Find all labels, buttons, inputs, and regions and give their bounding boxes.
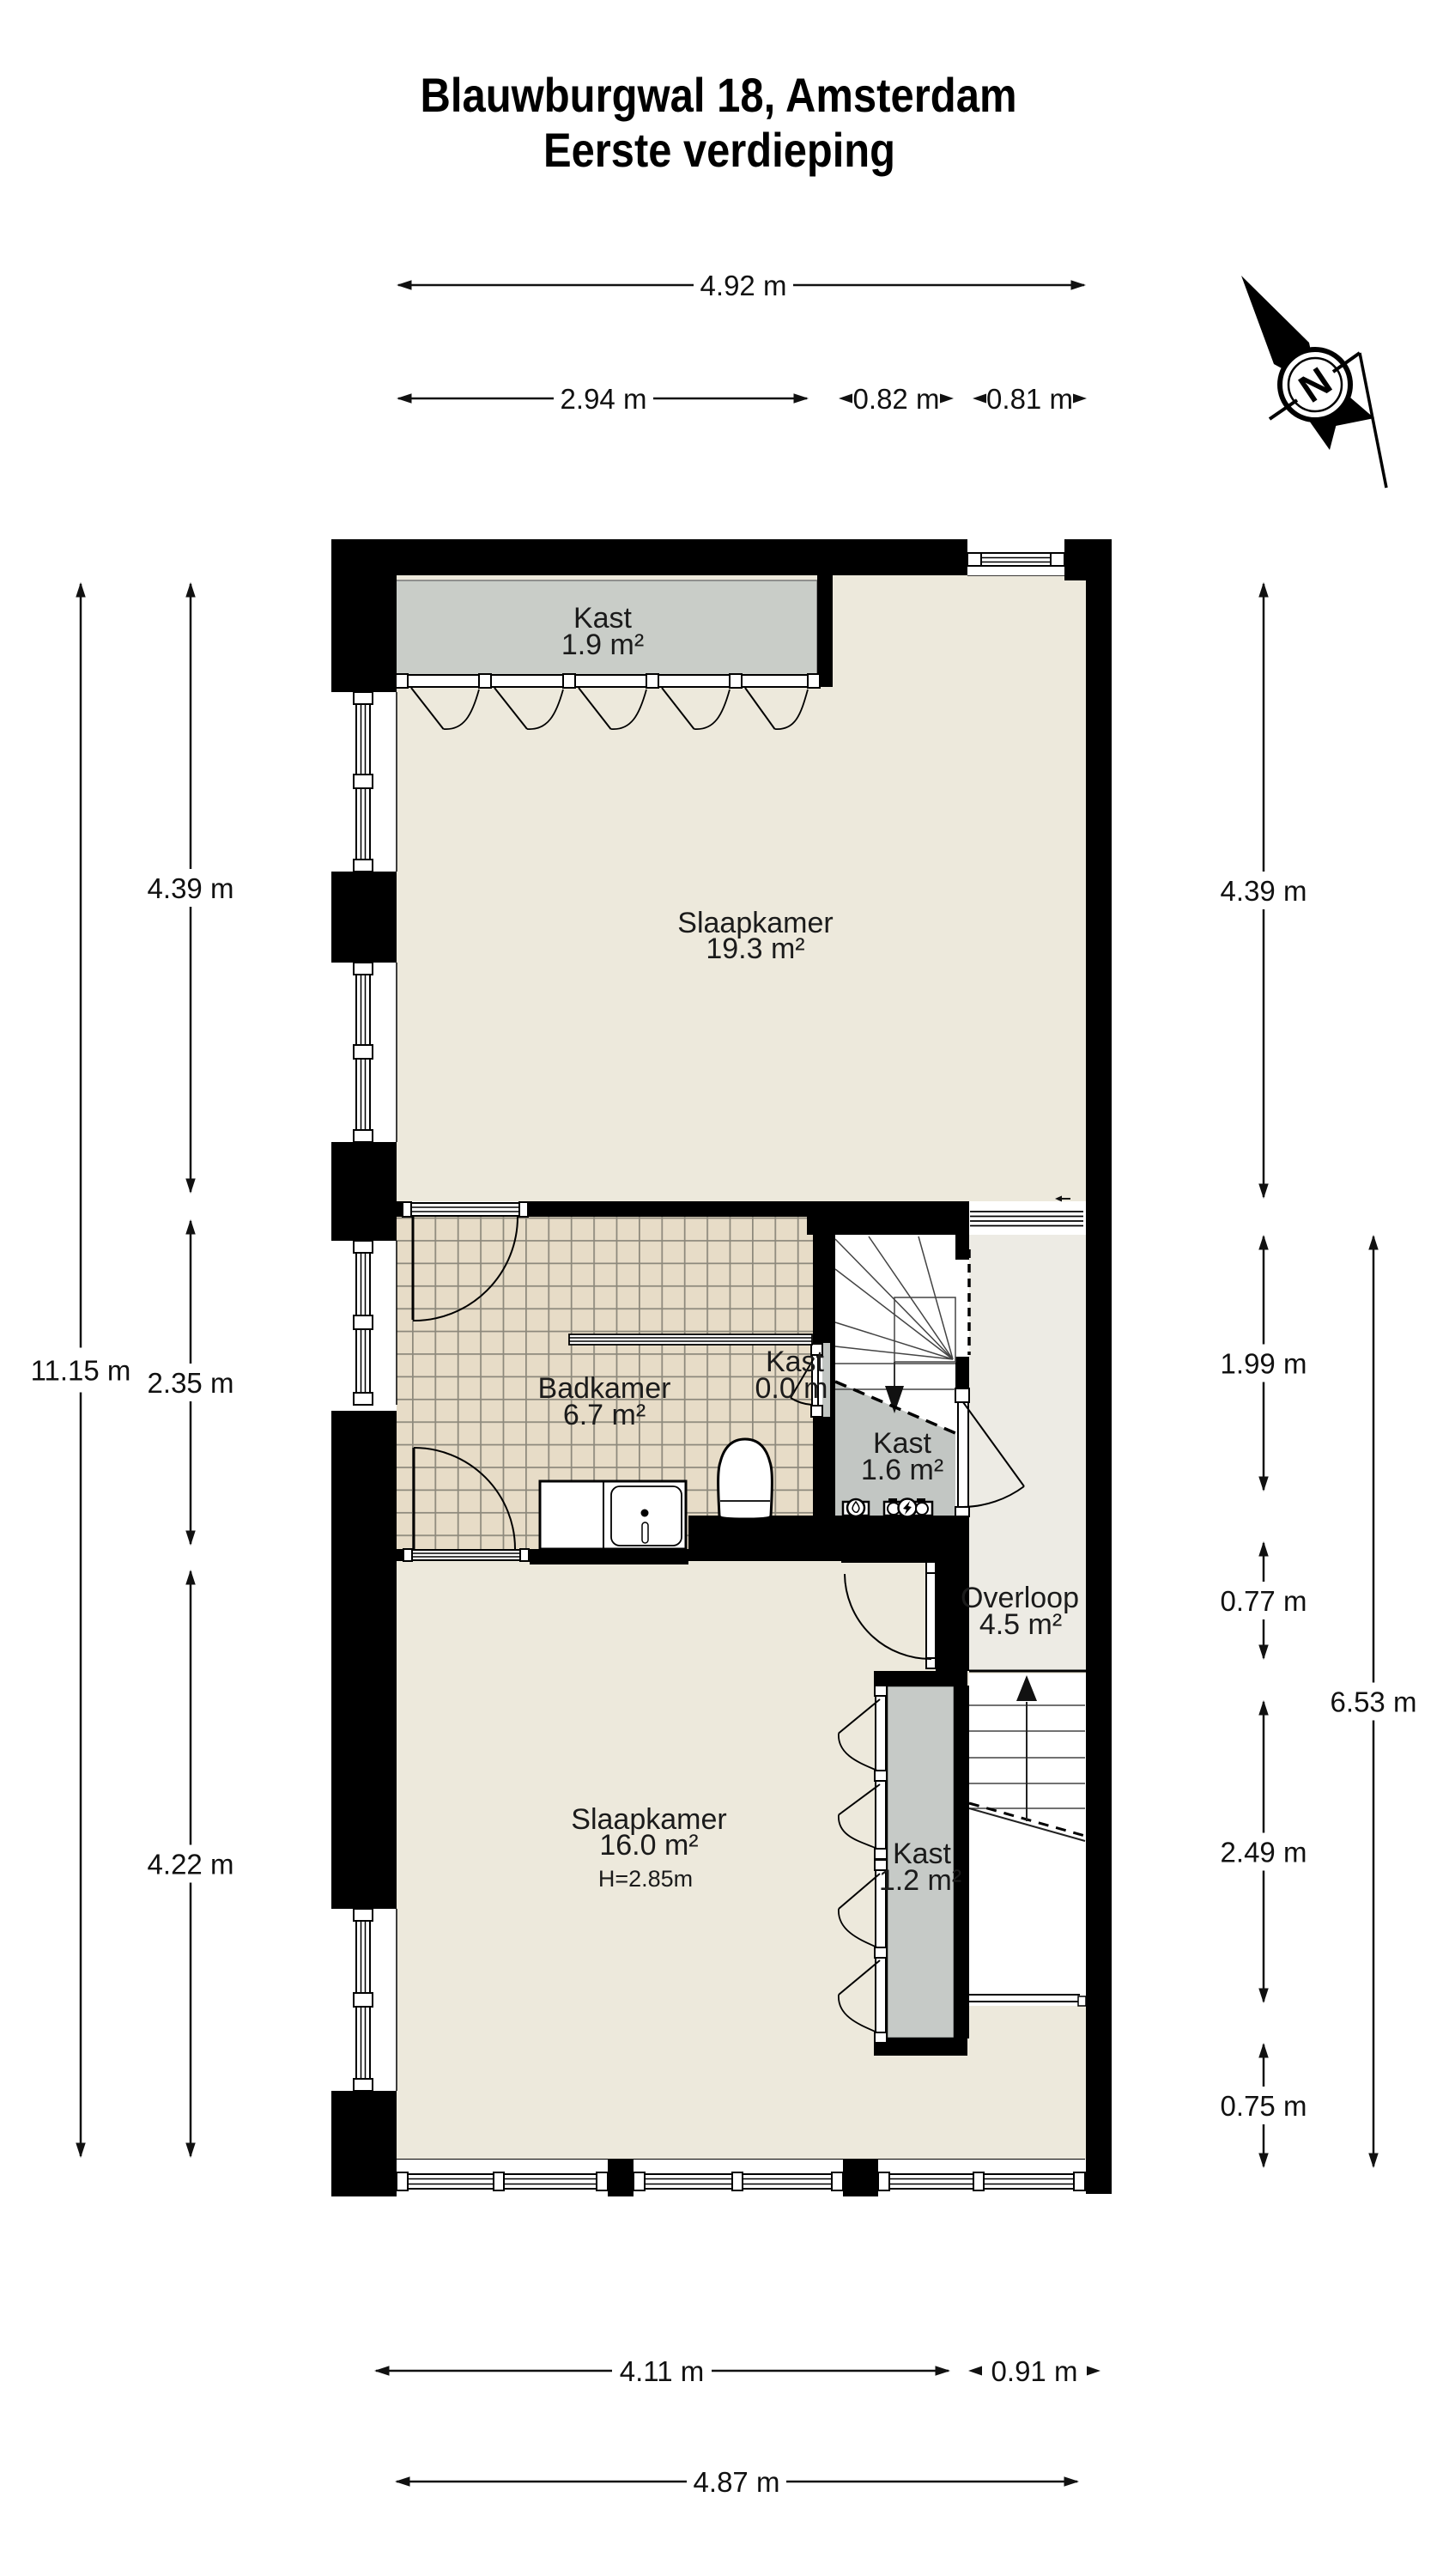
svg-text:0.77 m: 0.77 m [1221, 1585, 1307, 1617]
svg-text:4.39 m: 4.39 m [1221, 875, 1307, 907]
svg-text:4.92 m: 4.92 m [700, 270, 787, 301]
svg-text:1.99 m: 1.99 m [1221, 1348, 1307, 1380]
svg-text:Eerste verdieping: Eerste verdieping [543, 123, 895, 177]
svg-text:19.3 m²: 19.3 m² [706, 933, 804, 965]
svg-text:1.6 m²: 1.6 m² [861, 1454, 943, 1486]
svg-text:1.2 m²: 1.2 m² [879, 1864, 961, 1897]
svg-text:H=2.85m: H=2.85m [598, 1866, 693, 1892]
svg-text:4.5 m²: 4.5 m² [979, 1608, 1062, 1641]
svg-text:16.0 m²: 16.0 m² [599, 1829, 698, 1862]
svg-text:4.87 m: 4.87 m [694, 2466, 780, 2498]
svg-text:0.0 m: 0.0 m [755, 1372, 828, 1405]
svg-text:Blauwburgwal 18, Amsterdam: Blauwburgwal 18, Amsterdam [421, 68, 1017, 122]
svg-text:0.82 m: 0.82 m [853, 383, 940, 415]
svg-text:0.91 m: 0.91 m [991, 2355, 1078, 2387]
svg-text:2.94 m: 2.94 m [561, 383, 647, 415]
svg-text:2.35 m: 2.35 m [148, 1367, 234, 1399]
svg-text:0.81 m: 0.81 m [986, 383, 1073, 415]
svg-text:4.11 m: 4.11 m [620, 2355, 704, 2387]
svg-text:6.53 m: 6.53 m [1331, 1686, 1417, 1718]
svg-text:4.22 m: 4.22 m [148, 1849, 234, 1880]
svg-text:2.49 m: 2.49 m [1221, 1837, 1307, 1868]
svg-text:11.15 m: 11.15 m [31, 1355, 131, 1387]
svg-text:1.9 m²: 1.9 m² [561, 629, 644, 661]
svg-text:6.7 m²: 6.7 m² [563, 1399, 646, 1431]
svg-text:4.39 m: 4.39 m [148, 872, 234, 904]
svg-text:0.75 m: 0.75 m [1221, 2090, 1307, 2122]
